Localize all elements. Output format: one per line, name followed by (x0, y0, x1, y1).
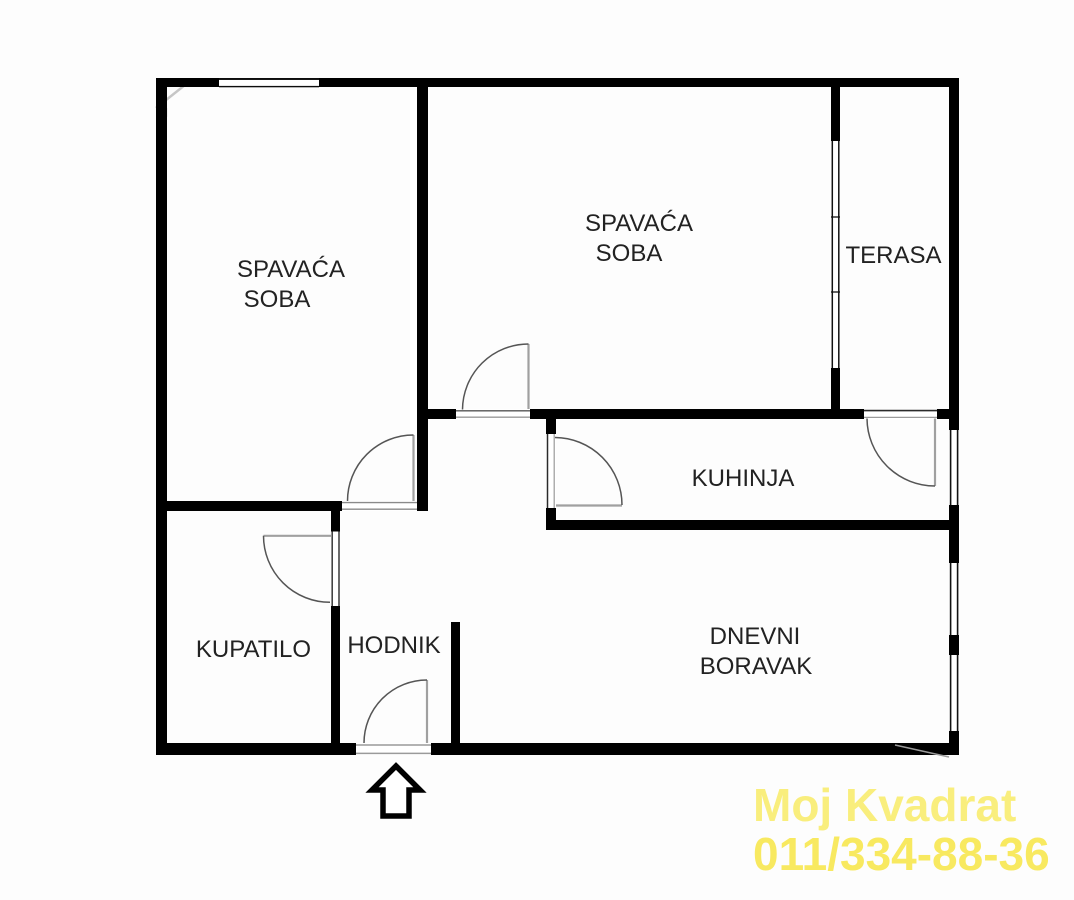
svg-text:HODNIK: HODNIK (347, 632, 440, 659)
svg-text:BORAVAK: BORAVAK (700, 653, 812, 680)
svg-text:KUPATILO: KUPATILO (196, 636, 311, 663)
svg-text:SPAVAĆA: SPAVAĆA (237, 256, 345, 283)
svg-text:SPAVAĆA: SPAVAĆA (585, 210, 693, 237)
svg-text:SOBA: SOBA (596, 240, 663, 267)
svg-text:Moj Kvadrat: Moj Kvadrat (753, 779, 1016, 831)
svg-text:SOBA: SOBA (244, 286, 311, 313)
svg-text:KUHINJA: KUHINJA (692, 465, 795, 492)
svg-text:011/334-88-36: 011/334-88-36 (753, 828, 1050, 880)
svg-text:TERASA: TERASA (845, 242, 941, 269)
svg-text:DNEVNI: DNEVNI (710, 623, 801, 650)
